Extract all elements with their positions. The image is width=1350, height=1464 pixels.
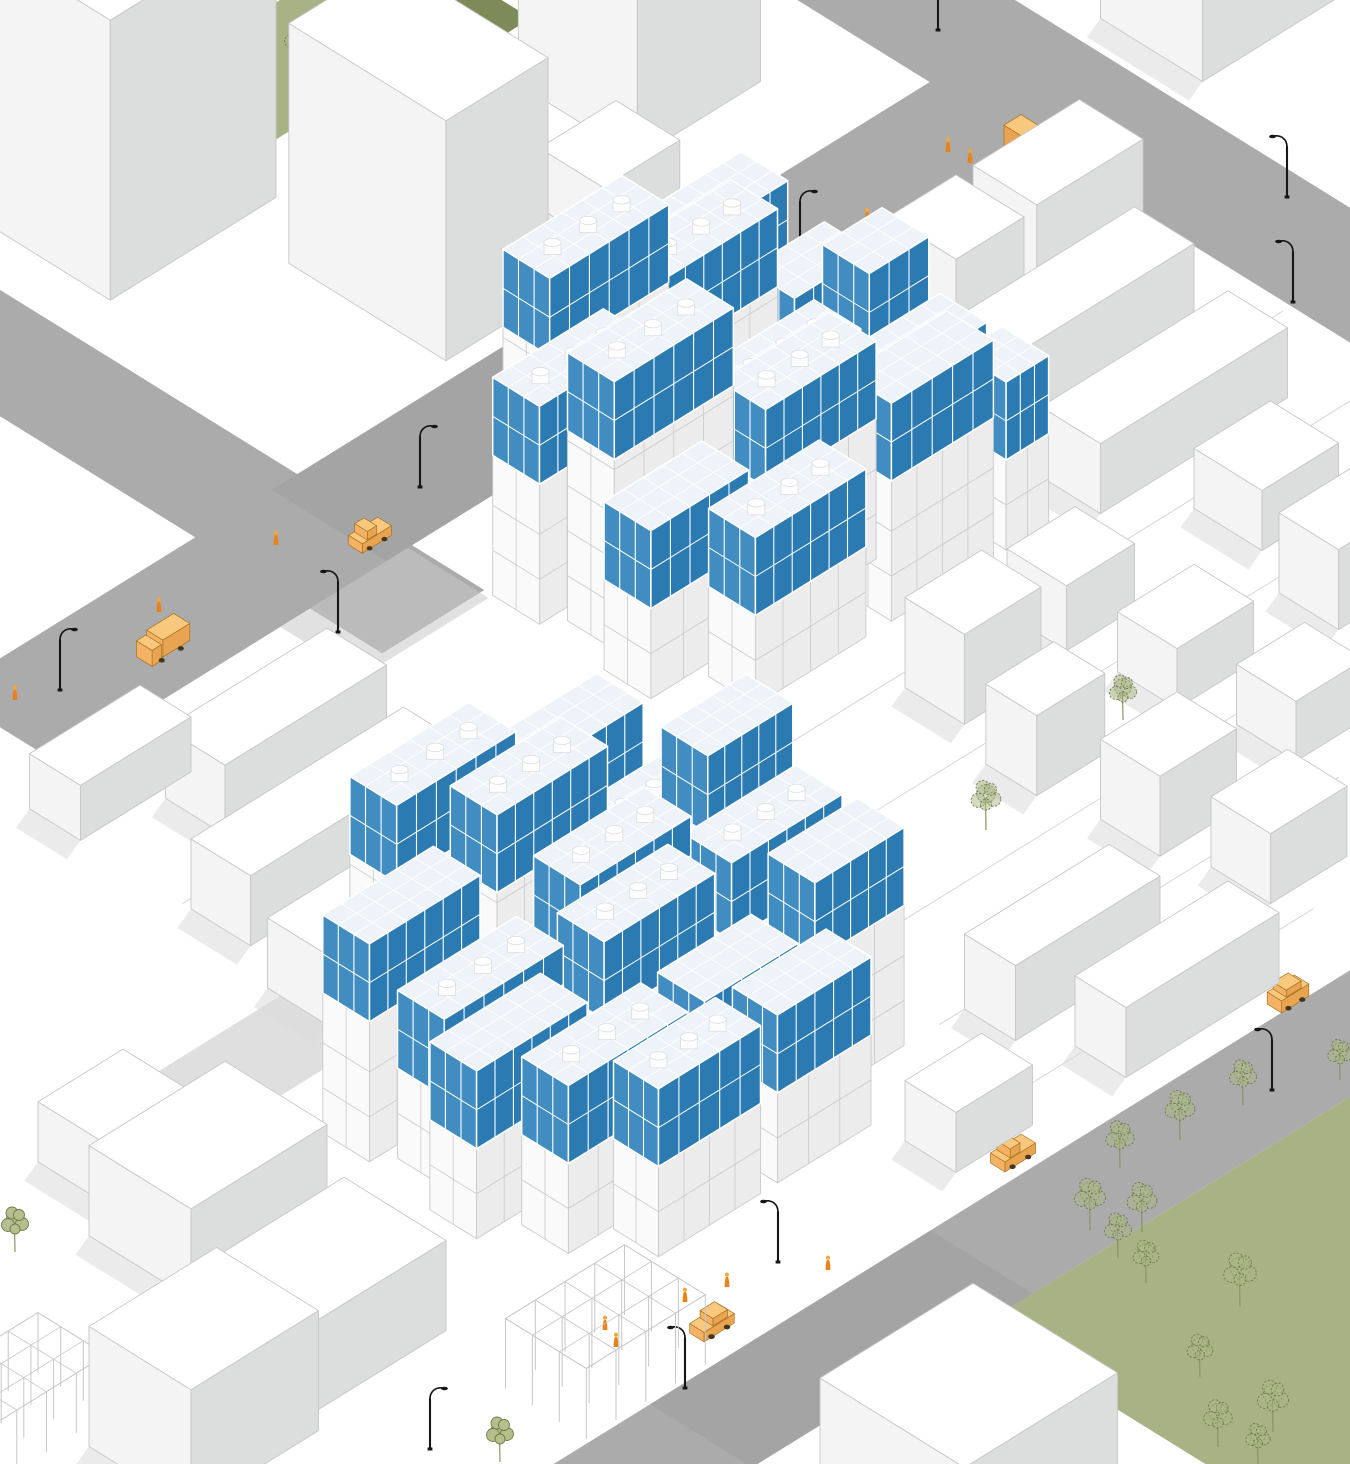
street-lamp [428,1387,448,1451]
pedestrian [826,1256,831,1270]
street-lamp [667,1326,687,1390]
pedestrian [274,531,279,545]
building-block [1101,0,1350,82]
grove-tree [487,1417,514,1462]
building-block [0,0,276,300]
grove-tree [2,1207,29,1252]
pedestrian [614,1333,619,1347]
sketch-tree [971,781,1001,831]
pedestrian [968,149,973,163]
street-lamp [760,1200,780,1264]
pedestrian [157,598,162,612]
pedestrian [683,1288,688,1302]
pedestrian [725,1273,730,1287]
axonometric-illustration [0,0,1350,1464]
pedestrian [946,138,951,152]
scene-svg [0,0,1350,1464]
sedan-lower [690,1302,735,1342]
city-objects-layer [0,0,1350,1464]
pedestrian [13,686,18,700]
